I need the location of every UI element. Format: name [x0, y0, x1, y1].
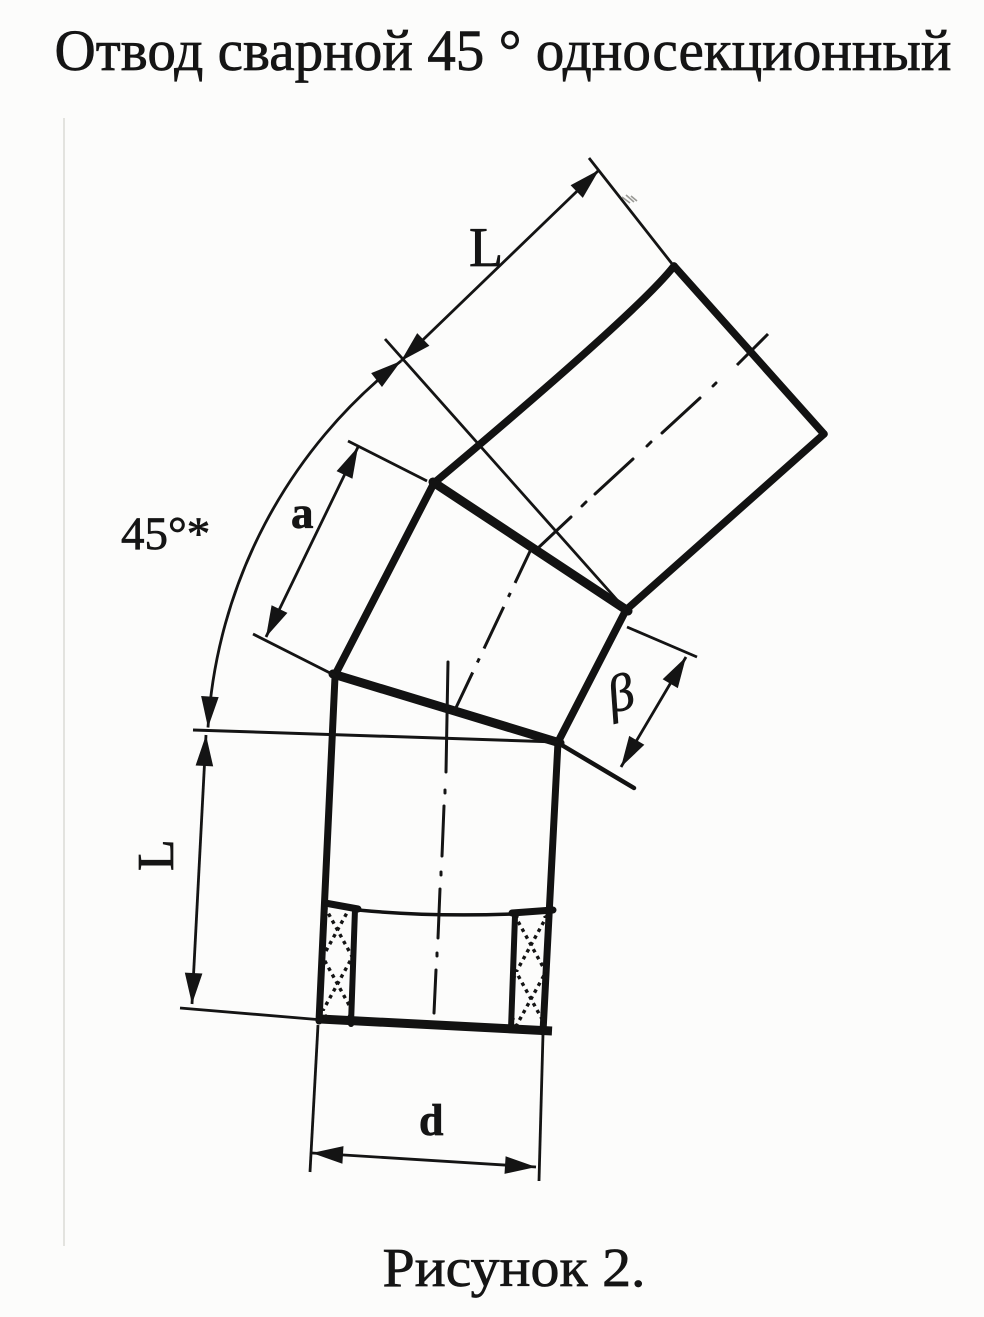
svg-text:β: β: [600, 663, 640, 725]
svg-text:L: L: [469, 217, 503, 279]
svg-text:L: L: [128, 839, 185, 871]
svg-text:d: d: [419, 1096, 443, 1145]
svg-text:Отвод сварной 45 ° односекцион: Отвод сварной 45 ° односекционный: [55, 18, 952, 83]
svg-text:Рисунок 2.: Рисунок 2.: [383, 1237, 646, 1298]
svg-text:a: a: [291, 488, 314, 538]
svg-text:45°*: 45°*: [121, 508, 210, 560]
